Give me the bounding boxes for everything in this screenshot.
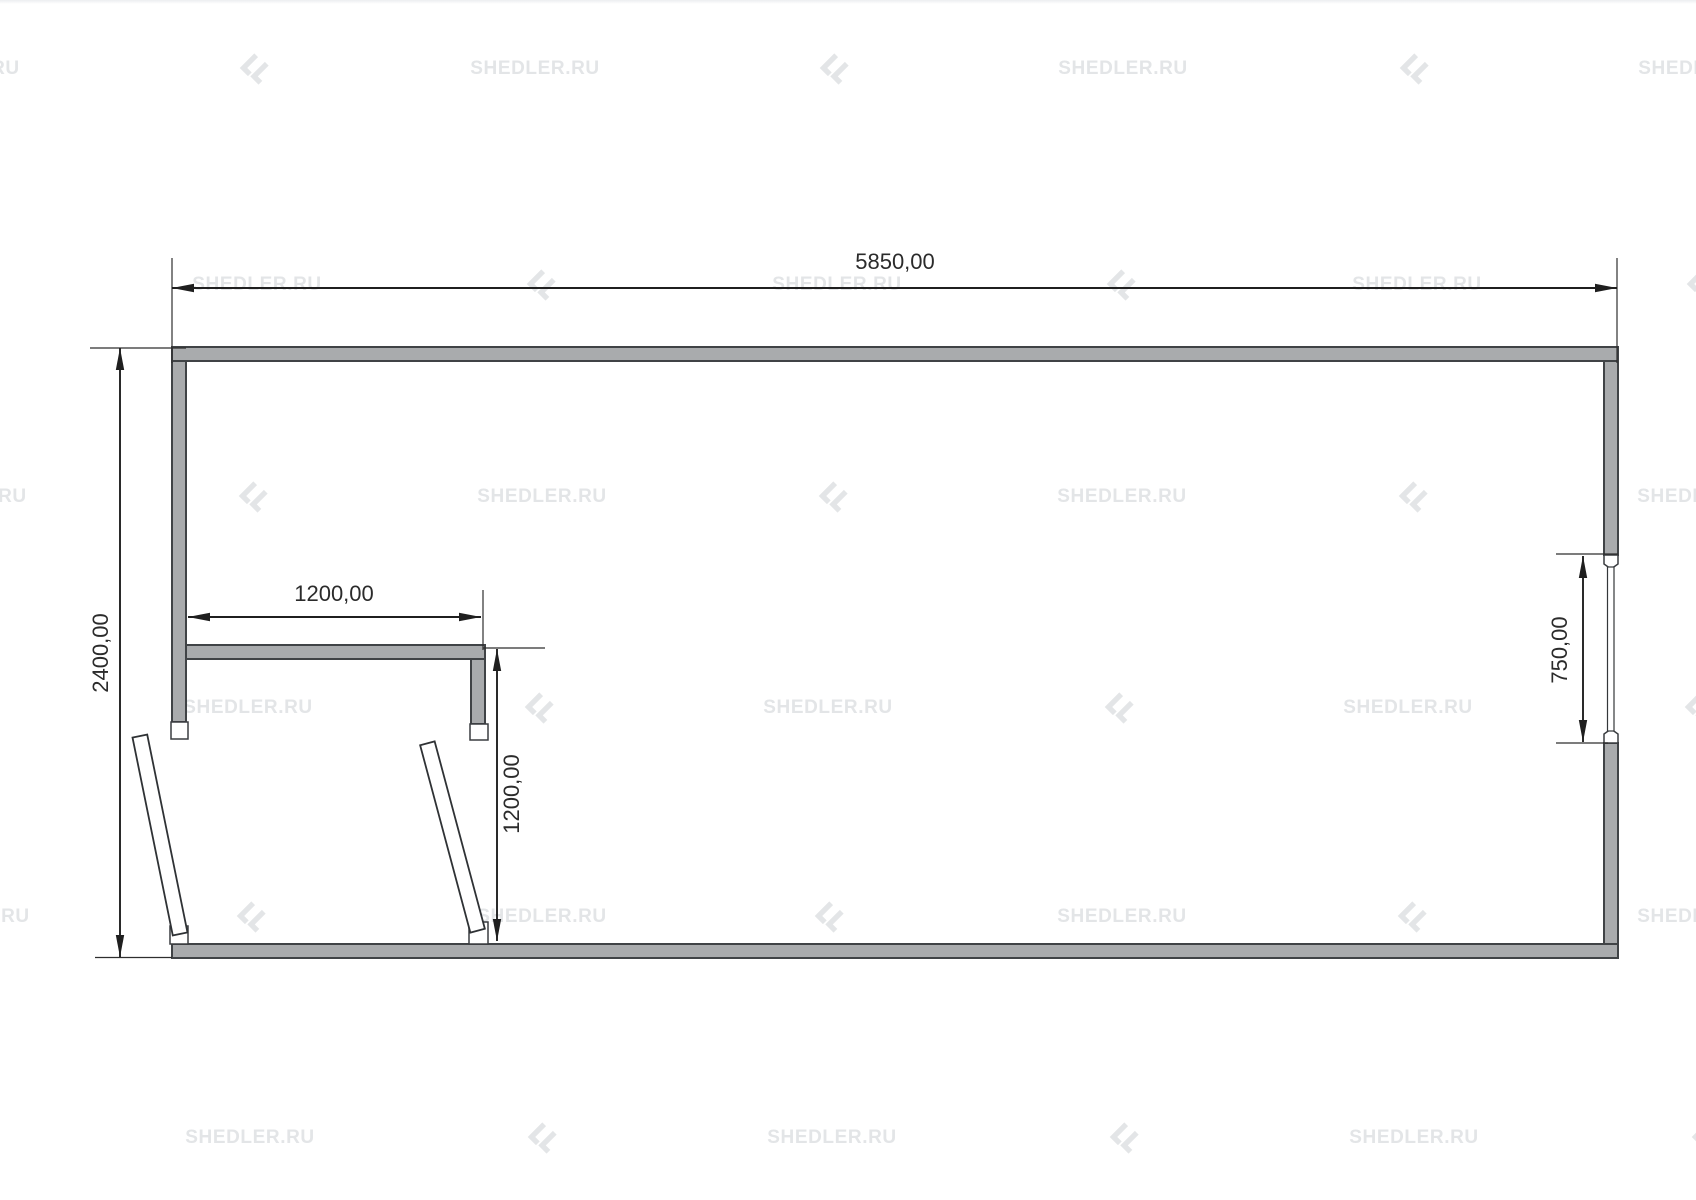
wall-right-lower [1604,743,1618,944]
dim-label-overall-height: 2400,00 [87,553,115,753]
wall-left [172,361,186,722]
arrowhead [1579,720,1587,742]
door-interior-leaf [420,741,485,932]
arrowhead [493,919,501,941]
dim-label-room-height: 1200,00 [498,694,526,894]
arrowhead [172,284,194,292]
wall-right-upper [1604,361,1618,555]
door-interior-jamb-top [470,724,488,740]
window-glazing [1608,567,1615,731]
wall-top [172,347,1618,361]
arrowhead [459,613,481,621]
door-left-leaf [133,735,188,936]
arrowhead [116,348,124,370]
arrowhead [493,649,501,671]
arrowhead [188,613,210,621]
arrowhead [116,935,124,957]
wall-partition-stub [471,659,485,724]
arrowhead [1579,556,1587,578]
dim-label-window-width: 750,00 [1546,550,1574,750]
door-left-jamb-top [171,722,188,739]
dim-label-room-width: 1200,00 [234,580,434,608]
arrowhead [1595,284,1617,292]
floorplan-canvas: SHEDLER.RUSHEDLER.RUSHEDLER.RUSHEDLER.RU… [0,0,1696,1200]
wall-partition-horizontal [186,645,485,659]
wall-bottom [172,944,1618,958]
dim-label-overall-width: 5850,00 [795,248,995,276]
